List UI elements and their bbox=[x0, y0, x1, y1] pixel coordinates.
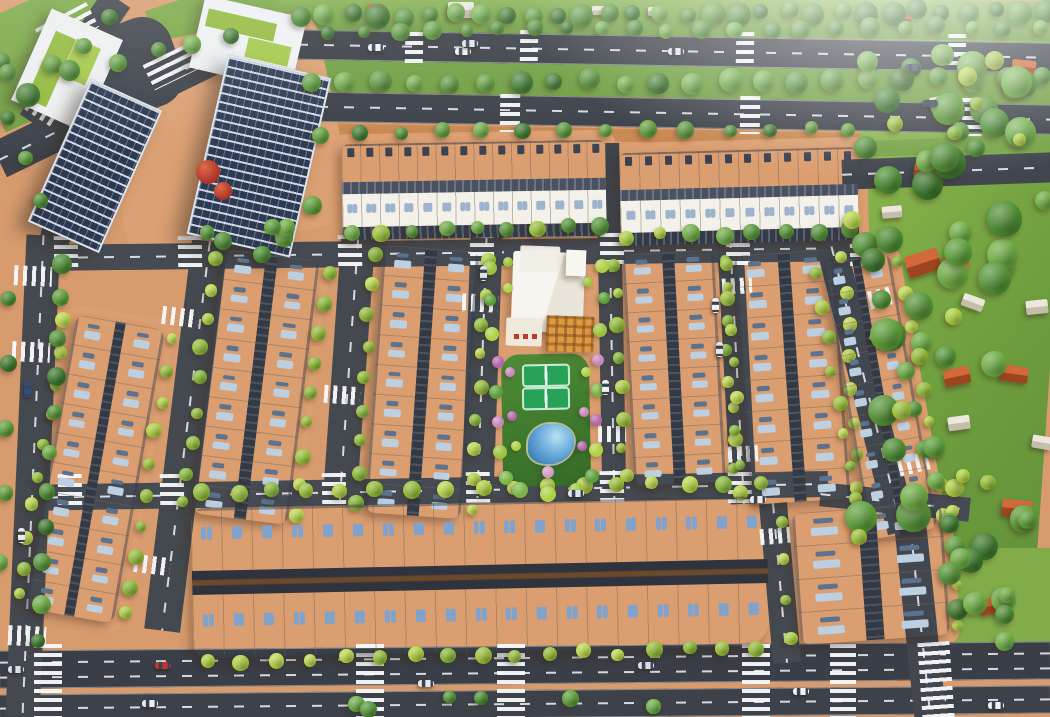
skylight bbox=[693, 373, 705, 378]
skylight bbox=[693, 603, 698, 616]
skylight bbox=[234, 265, 252, 275]
tree bbox=[828, 20, 844, 36]
skylight bbox=[506, 607, 511, 620]
tree bbox=[461, 24, 474, 37]
skylight bbox=[233, 613, 238, 626]
mansard-roof-row bbox=[341, 140, 606, 183]
skylight bbox=[385, 379, 402, 388]
crosswalk bbox=[740, 96, 761, 134]
skylight bbox=[102, 515, 119, 525]
tree bbox=[654, 227, 666, 239]
skylight bbox=[390, 204, 395, 213]
skylight bbox=[446, 203, 451, 212]
tree bbox=[930, 143, 959, 172]
skylight bbox=[92, 574, 109, 584]
skylight bbox=[121, 420, 134, 427]
skylight bbox=[898, 422, 911, 432]
skylight bbox=[692, 380, 709, 388]
skylight bbox=[276, 381, 289, 387]
skylight bbox=[383, 523, 388, 536]
skylight bbox=[663, 604, 668, 617]
dormer-window bbox=[843, 151, 850, 160]
skylight bbox=[219, 404, 232, 410]
skylight bbox=[261, 498, 274, 504]
skylight bbox=[451, 608, 456, 621]
skylight bbox=[47, 536, 64, 546]
dormer-window bbox=[460, 146, 467, 155]
skylight bbox=[646, 462, 658, 467]
park-tree bbox=[595, 259, 609, 273]
tree bbox=[345, 4, 362, 21]
car bbox=[368, 44, 384, 51]
skylight bbox=[388, 371, 401, 377]
dormer-window bbox=[498, 145, 505, 154]
skylight bbox=[481, 608, 486, 621]
tree bbox=[932, 93, 965, 126]
skylight bbox=[595, 518, 600, 531]
skylight bbox=[322, 524, 327, 537]
tree bbox=[443, 691, 455, 703]
skylight bbox=[132, 361, 145, 368]
tree bbox=[924, 416, 935, 427]
skylight bbox=[578, 200, 583, 209]
tree bbox=[473, 122, 489, 138]
skylight bbox=[298, 525, 303, 538]
tree bbox=[76, 38, 93, 55]
car bbox=[142, 700, 158, 707]
skylight bbox=[635, 260, 647, 265]
tree bbox=[639, 120, 657, 138]
dormer-window bbox=[705, 155, 712, 164]
skylight bbox=[68, 419, 85, 429]
tree bbox=[990, 2, 1004, 16]
skylight bbox=[433, 472, 450, 481]
tree bbox=[205, 284, 218, 297]
skylight bbox=[510, 520, 515, 533]
skylight bbox=[63, 448, 80, 458]
skylight bbox=[61, 470, 74, 477]
dormer-window bbox=[724, 154, 731, 163]
skylight bbox=[211, 463, 224, 469]
skylight bbox=[324, 611, 329, 624]
tree bbox=[200, 225, 215, 240]
skylight bbox=[871, 482, 881, 488]
tree bbox=[476, 480, 492, 496]
tree bbox=[857, 51, 878, 72]
skylight bbox=[439, 405, 452, 411]
tower-red-tree-1 bbox=[196, 160, 220, 184]
tree bbox=[956, 469, 970, 483]
skylight bbox=[899, 545, 919, 551]
tree bbox=[508, 650, 520, 662]
skylight bbox=[207, 526, 212, 539]
skylight bbox=[752, 323, 766, 329]
park-tree bbox=[593, 323, 607, 337]
park-tree bbox=[503, 283, 513, 293]
skylight bbox=[444, 345, 457, 351]
tree bbox=[17, 562, 31, 576]
skylight bbox=[818, 625, 845, 635]
dormer-window bbox=[645, 156, 652, 165]
tree bbox=[49, 330, 65, 346]
car bbox=[18, 528, 25, 543]
skylight bbox=[690, 210, 695, 219]
skylight bbox=[394, 282, 407, 288]
tree bbox=[1, 291, 16, 306]
dormer-window bbox=[804, 152, 811, 161]
tree bbox=[748, 641, 764, 657]
skylight bbox=[474, 521, 479, 534]
park-tree bbox=[507, 411, 517, 421]
park-tree bbox=[493, 445, 507, 459]
park-tree bbox=[489, 385, 503, 399]
skylight bbox=[690, 315, 702, 320]
tree bbox=[304, 386, 317, 399]
tree bbox=[715, 641, 730, 656]
dormer-window bbox=[479, 146, 486, 155]
tree bbox=[16, 83, 40, 107]
tree bbox=[357, 371, 370, 384]
car bbox=[905, 64, 921, 71]
tree bbox=[52, 254, 72, 274]
skylight bbox=[355, 610, 360, 623]
crosswalk bbox=[598, 426, 626, 442]
tree bbox=[725, 324, 736, 335]
tree bbox=[719, 68, 742, 91]
tree bbox=[900, 483, 928, 511]
skylight bbox=[237, 257, 250, 263]
tree bbox=[269, 653, 285, 669]
tree bbox=[109, 54, 127, 72]
skylight bbox=[689, 322, 706, 330]
skylight bbox=[570, 519, 575, 532]
tree bbox=[887, 116, 903, 132]
skylight bbox=[747, 269, 765, 278]
skylight bbox=[541, 201, 546, 210]
tree bbox=[406, 225, 418, 237]
tree bbox=[820, 69, 843, 92]
car bbox=[716, 342, 723, 357]
skylight bbox=[390, 342, 403, 348]
skylight bbox=[696, 467, 713, 475]
tree bbox=[779, 224, 794, 239]
tree bbox=[208, 251, 223, 266]
tower-red-tree-2 bbox=[214, 182, 232, 200]
skylight bbox=[754, 354, 768, 360]
skylight bbox=[754, 602, 759, 615]
tree bbox=[876, 226, 903, 253]
tree bbox=[352, 466, 367, 481]
tree bbox=[778, 553, 790, 565]
skylight bbox=[385, 610, 390, 623]
skylight bbox=[384, 431, 397, 437]
skylight bbox=[819, 475, 833, 481]
car bbox=[750, 496, 766, 503]
skylight bbox=[389, 523, 394, 536]
skylight bbox=[730, 209, 735, 218]
dormer-window bbox=[764, 153, 771, 162]
skylight bbox=[279, 352, 292, 358]
car bbox=[988, 702, 1004, 709]
skylight bbox=[504, 520, 509, 533]
skylight bbox=[445, 294, 462, 303]
tree bbox=[958, 67, 977, 86]
tree bbox=[0, 554, 8, 571]
tree bbox=[25, 497, 38, 510]
skylight bbox=[299, 612, 304, 625]
skylight bbox=[441, 353, 458, 362]
tree bbox=[18, 151, 32, 165]
skylight bbox=[631, 518, 636, 531]
skylight bbox=[567, 606, 572, 619]
tree bbox=[904, 292, 932, 320]
car bbox=[922, 100, 938, 107]
skylight bbox=[371, 204, 376, 213]
tree bbox=[892, 256, 903, 267]
tree bbox=[435, 122, 450, 137]
tree bbox=[143, 458, 155, 470]
tree bbox=[193, 370, 207, 384]
tree bbox=[339, 649, 353, 663]
tree bbox=[966, 21, 980, 35]
tree bbox=[193, 483, 211, 501]
skylight bbox=[446, 316, 459, 322]
skylight bbox=[40, 587, 53, 594]
skylight bbox=[686, 516, 691, 529]
skylight bbox=[816, 592, 843, 602]
skylight bbox=[860, 421, 870, 427]
tree bbox=[363, 341, 375, 353]
skylight bbox=[226, 345, 239, 351]
tree bbox=[841, 123, 855, 137]
tree bbox=[1033, 20, 1048, 35]
tree bbox=[177, 496, 188, 507]
skylight bbox=[290, 264, 303, 270]
tree bbox=[611, 649, 623, 661]
skylight bbox=[565, 519, 570, 532]
tree bbox=[423, 21, 442, 40]
skylight bbox=[658, 604, 663, 617]
skylight bbox=[690, 351, 707, 359]
tree bbox=[406, 75, 423, 92]
tree bbox=[874, 166, 902, 194]
dormer-window bbox=[423, 147, 430, 156]
skylight bbox=[892, 383, 902, 389]
skylight bbox=[811, 389, 829, 398]
tree bbox=[253, 246, 270, 263]
skylight bbox=[849, 359, 859, 365]
skylight bbox=[503, 202, 508, 211]
skylight bbox=[789, 207, 794, 216]
tree bbox=[365, 4, 390, 29]
tree bbox=[730, 391, 743, 404]
tree bbox=[264, 219, 281, 236]
skylight bbox=[753, 362, 771, 371]
tree bbox=[815, 300, 829, 314]
tree bbox=[301, 416, 312, 427]
tree bbox=[682, 476, 699, 493]
tree bbox=[677, 121, 694, 138]
skylight bbox=[441, 375, 454, 381]
tree bbox=[302, 73, 321, 92]
skylight bbox=[749, 300, 767, 309]
tree bbox=[313, 4, 334, 25]
skylight bbox=[849, 367, 862, 377]
tree bbox=[872, 290, 891, 309]
park-tree bbox=[577, 441, 587, 451]
skylight bbox=[447, 264, 464, 273]
skylight bbox=[813, 518, 833, 524]
car bbox=[8, 666, 24, 673]
skylight bbox=[844, 336, 857, 346]
car bbox=[418, 680, 434, 687]
tree bbox=[905, 320, 918, 333]
skylight bbox=[761, 448, 775, 454]
tree bbox=[978, 262, 1011, 295]
skylight bbox=[219, 382, 237, 392]
skylight bbox=[445, 609, 450, 622]
tree bbox=[510, 71, 533, 94]
tree bbox=[838, 428, 848, 438]
school-red-windows bbox=[514, 334, 519, 339]
skylight bbox=[829, 206, 834, 215]
skylight bbox=[381, 438, 398, 447]
tree bbox=[780, 595, 790, 605]
skylight bbox=[815, 413, 829, 419]
skylight bbox=[815, 551, 835, 557]
skylight bbox=[106, 508, 119, 515]
dormer-window bbox=[517, 145, 524, 154]
tree bbox=[0, 420, 14, 437]
tree bbox=[136, 521, 147, 532]
skylight bbox=[133, 339, 150, 349]
dormer-window bbox=[347, 148, 354, 157]
skylight bbox=[900, 586, 927, 596]
tree bbox=[716, 227, 734, 245]
tree bbox=[645, 476, 658, 489]
skylight bbox=[66, 440, 79, 447]
tree bbox=[715, 476, 732, 493]
skylight bbox=[203, 614, 208, 627]
tree bbox=[753, 70, 775, 92]
skylight bbox=[383, 409, 400, 418]
car bbox=[638, 662, 654, 669]
skylight bbox=[597, 605, 602, 618]
skylight bbox=[602, 605, 607, 618]
skylight bbox=[816, 452, 834, 461]
tree bbox=[545, 73, 562, 90]
tree bbox=[529, 221, 546, 238]
skylight bbox=[449, 521, 454, 534]
skylight bbox=[627, 605, 632, 618]
skylight bbox=[126, 391, 139, 398]
tree bbox=[811, 224, 827, 240]
tree bbox=[54, 346, 67, 359]
skylight bbox=[53, 507, 70, 517]
skylight bbox=[808, 319, 822, 325]
skylight bbox=[637, 289, 649, 294]
tree bbox=[308, 357, 321, 370]
tree bbox=[332, 484, 347, 499]
tree bbox=[352, 125, 368, 141]
tree bbox=[440, 648, 455, 663]
skylight bbox=[695, 438, 712, 446]
skylight bbox=[353, 523, 358, 536]
village-house bbox=[882, 205, 903, 219]
skylight bbox=[269, 612, 274, 625]
shophouse-block-south bbox=[190, 496, 769, 658]
skylight bbox=[128, 369, 145, 379]
tree bbox=[55, 312, 71, 328]
skylight bbox=[113, 457, 130, 467]
tree bbox=[931, 44, 954, 67]
skylight bbox=[640, 347, 652, 352]
skylight bbox=[123, 398, 140, 408]
skylight bbox=[229, 316, 242, 322]
tree bbox=[999, 587, 1015, 603]
skylight bbox=[392, 312, 405, 318]
car bbox=[602, 380, 609, 395]
tree bbox=[291, 7, 311, 27]
tree bbox=[854, 136, 877, 159]
park-tree bbox=[511, 441, 521, 451]
park-tree bbox=[503, 257, 513, 267]
tree bbox=[490, 21, 504, 35]
school-roof-tower bbox=[566, 250, 587, 277]
tree bbox=[474, 380, 489, 395]
tree bbox=[214, 232, 232, 250]
skylight bbox=[287, 271, 305, 281]
skylight bbox=[838, 298, 848, 304]
tree bbox=[651, 5, 668, 22]
skylight bbox=[697, 460, 709, 465]
skylight bbox=[650, 211, 655, 220]
skylight bbox=[871, 490, 884, 500]
dormer-window bbox=[784, 153, 791, 162]
park-tree bbox=[581, 367, 591, 377]
skylight bbox=[817, 444, 831, 450]
park-tree bbox=[579, 407, 589, 417]
skylight bbox=[231, 526, 236, 539]
dormer-window bbox=[574, 144, 581, 153]
tree bbox=[609, 317, 624, 332]
skylight bbox=[694, 402, 706, 407]
skylight bbox=[755, 393, 773, 402]
park-tree bbox=[492, 416, 504, 428]
skylight bbox=[352, 204, 357, 213]
skylight bbox=[559, 201, 564, 210]
skylight bbox=[640, 383, 657, 391]
park-tree bbox=[512, 482, 528, 498]
tree bbox=[927, 16, 944, 33]
tree bbox=[882, 438, 906, 462]
skylight bbox=[116, 449, 129, 456]
skylight bbox=[72, 411, 85, 418]
skylight bbox=[750, 292, 764, 298]
tree bbox=[952, 620, 963, 631]
skylight bbox=[691, 344, 703, 349]
tree bbox=[659, 24, 673, 38]
tree bbox=[845, 501, 876, 532]
tree bbox=[475, 348, 485, 358]
tree bbox=[615, 380, 630, 395]
skylight bbox=[437, 434, 450, 440]
park-tree bbox=[589, 443, 603, 457]
tree bbox=[860, 17, 880, 37]
skylight bbox=[748, 261, 762, 267]
skylight bbox=[636, 296, 653, 304]
skylight bbox=[818, 584, 838, 590]
